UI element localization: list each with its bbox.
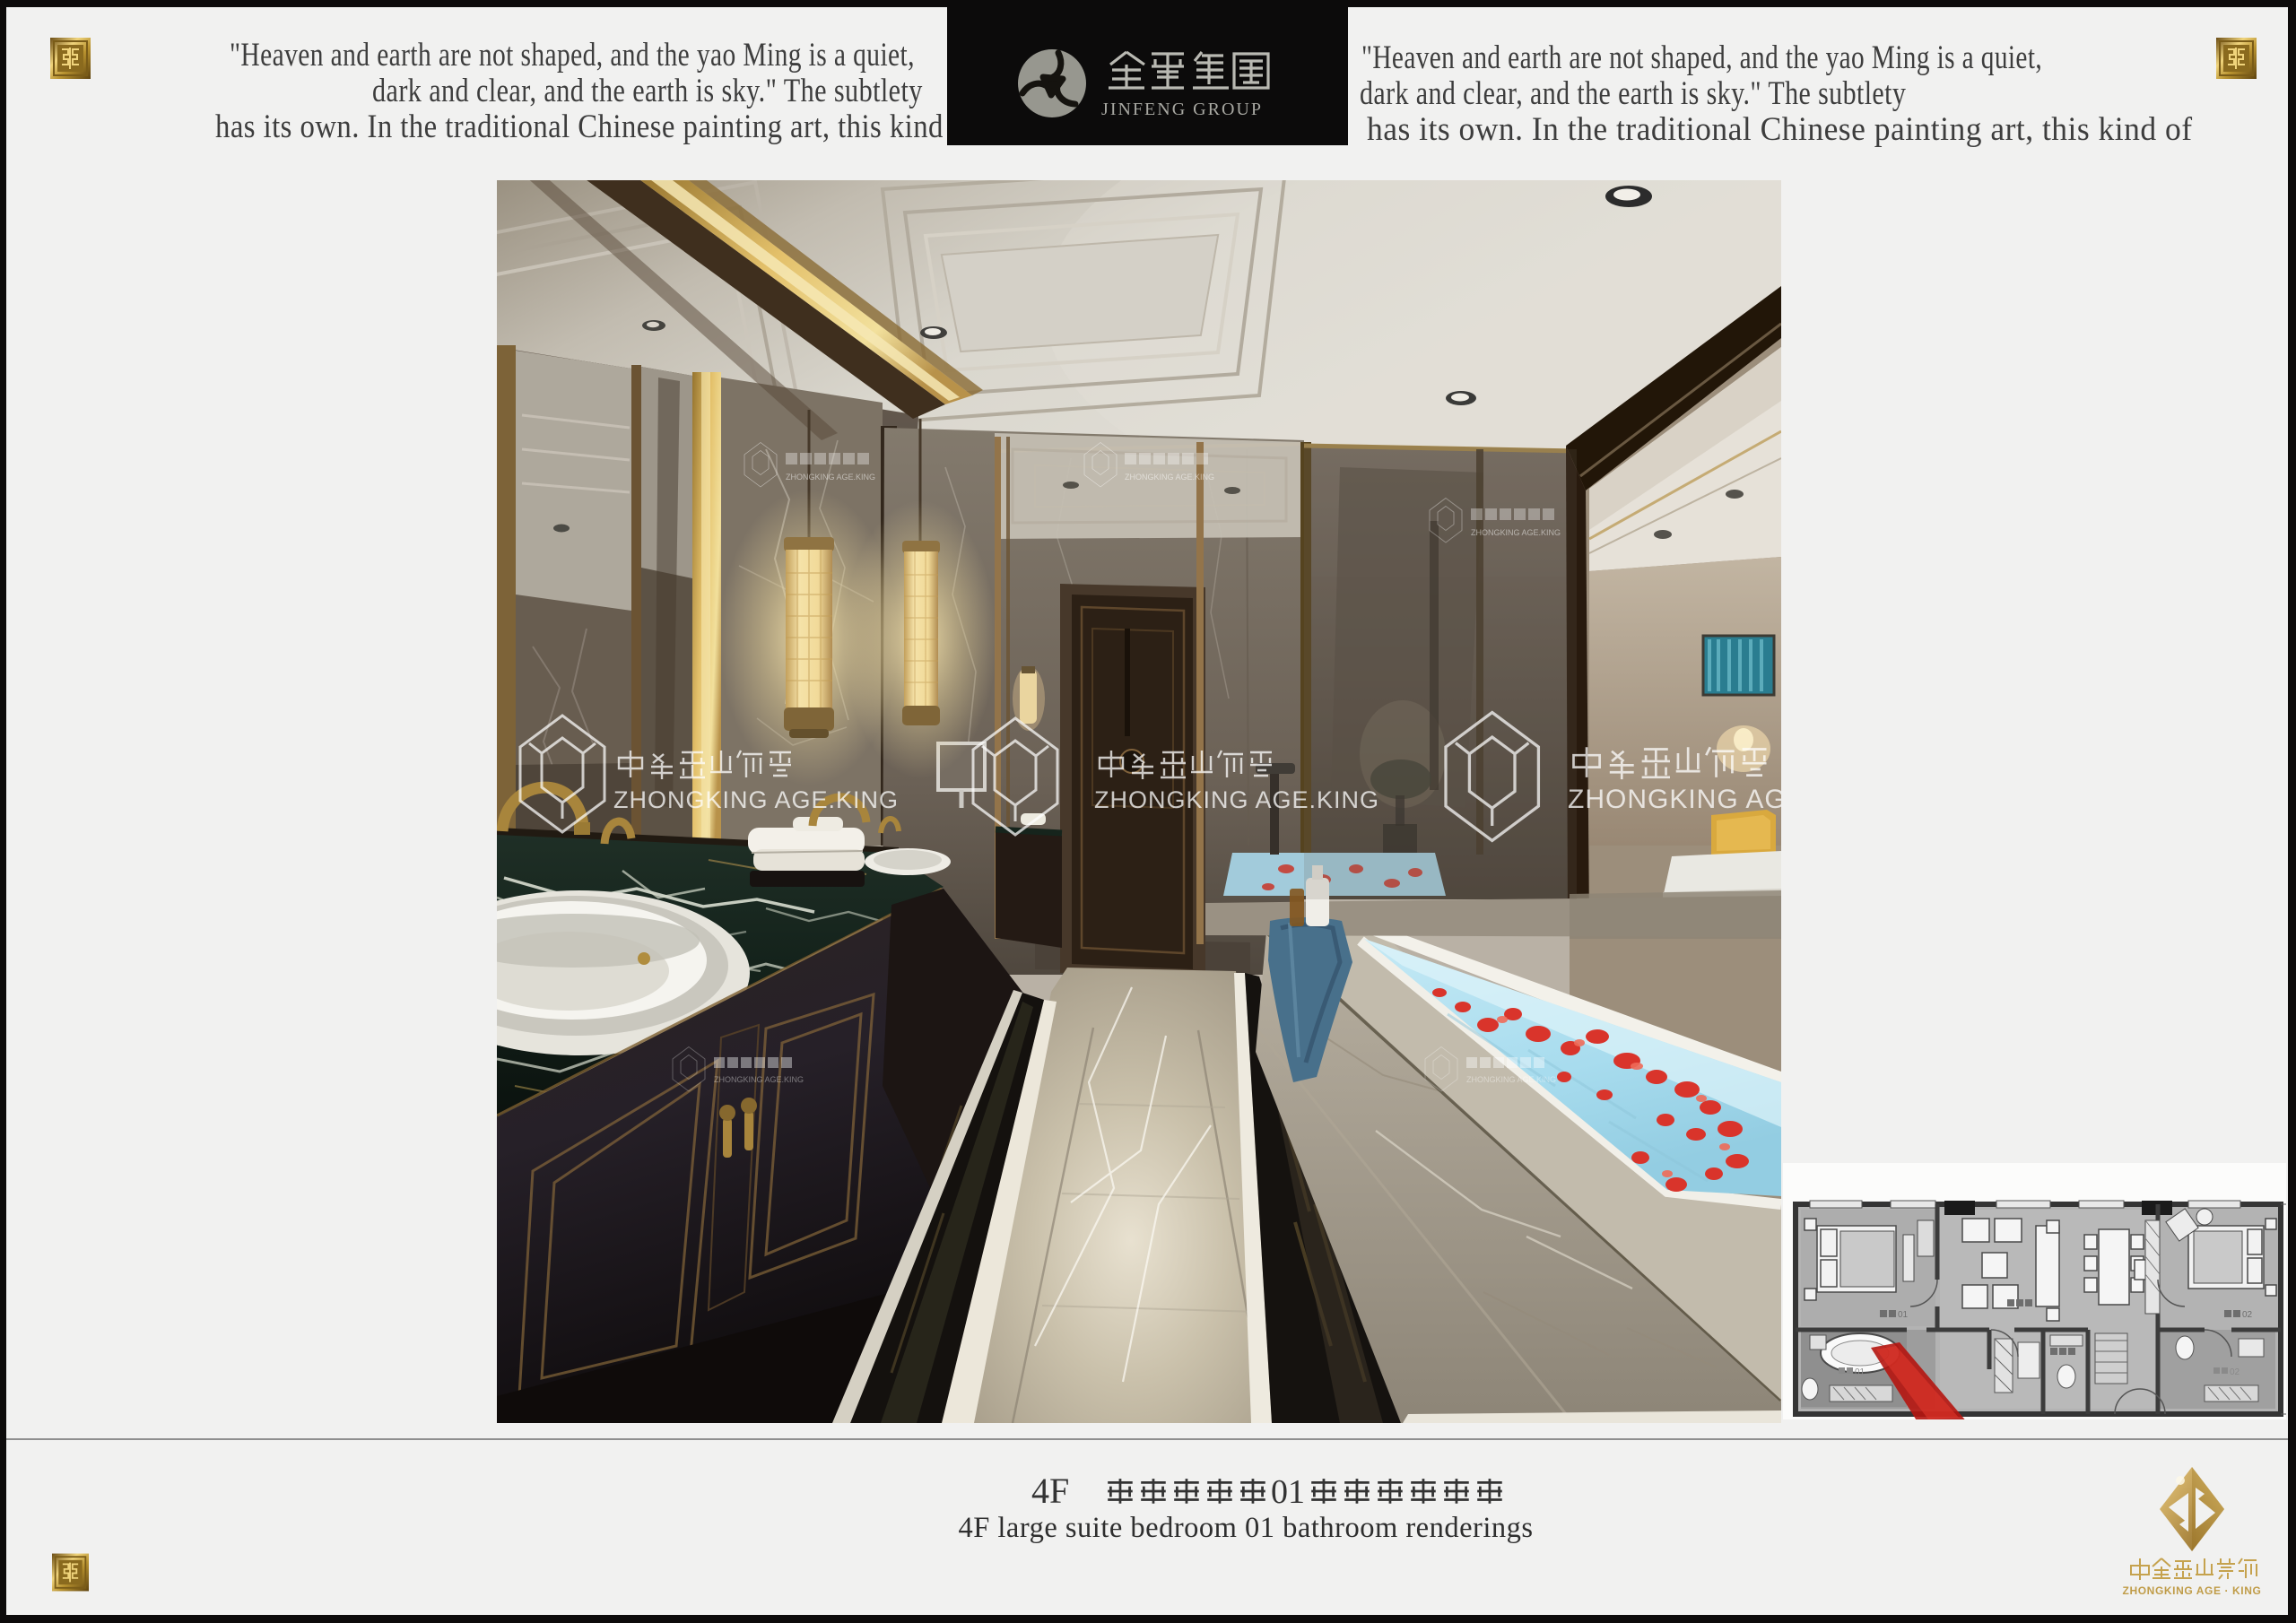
svg-text:JINFENG GROUP: JINFENG GROUP xyxy=(1101,100,1263,119)
svg-text:02: 02 xyxy=(2230,1367,2240,1377)
svg-text:ZHONGKING AGE.KING: ZHONGKING AGE.KING xyxy=(1466,1075,1556,1084)
svg-text:ZHONGKING AGE.KING: ZHONGKING AGE.KING xyxy=(1094,786,1379,813)
svg-text:ZHONGKING AGE.KING: ZHONGKING AGE.KING xyxy=(1471,528,1561,537)
svg-text:ZHONGKING AGE.KING: ZHONGKING AGE.KING xyxy=(786,473,875,482)
svg-text:01: 01 xyxy=(1898,1310,1909,1320)
svg-text:02: 02 xyxy=(2242,1310,2253,1320)
svg-text:4F: 4F xyxy=(1031,1471,1069,1511)
svg-text:01: 01 xyxy=(1271,1473,1305,1511)
svg-text:ZHONGKING AGE.KING: ZHONGKING AGE.KING xyxy=(613,786,899,813)
svg-text:ZHONGKING AGE · KING: ZHONGKING AGE · KING xyxy=(2123,1584,2262,1596)
svg-text:ZHONGKING AGE.KING: ZHONGKING AGE.KING xyxy=(1125,473,1214,482)
svg-text:01: 01 xyxy=(1855,1367,1865,1377)
svg-text:ZHONGKING AGE.KING: ZHONGKING AGE.KING xyxy=(1568,785,1781,814)
svg-text:ZHONGKING AGE.KING: ZHONGKING AGE.KING xyxy=(714,1075,804,1084)
